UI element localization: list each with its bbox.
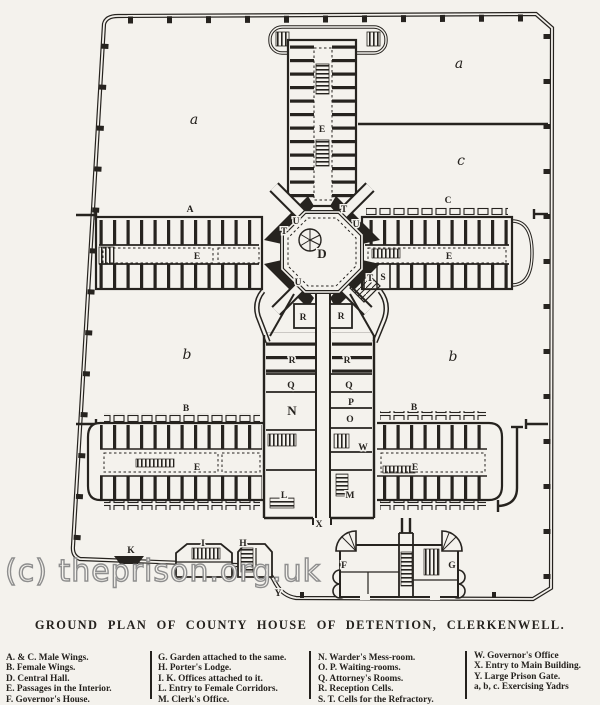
legend-entry: Y. Large Prison Gate. [474, 672, 596, 682]
plan-label-R: R [344, 356, 351, 366]
legend-entry: G. Garden attached to the same. [158, 653, 303, 663]
plan-label-L: L [281, 491, 287, 501]
plan-label-O: O [346, 415, 353, 425]
plan-label-C: C [445, 196, 452, 206]
plan-label-M: M [346, 491, 355, 501]
legend-column-2: G. Garden attached to the same.H. Porter… [158, 653, 303, 705]
female-wing-b-left [88, 413, 264, 510]
legend-entry: A. & C. Male Wings. [6, 653, 146, 663]
plan-label-R: R [300, 313, 307, 323]
plan-label-U: U [295, 278, 302, 288]
staircase [316, 140, 329, 166]
plan-label-X: X [316, 520, 323, 530]
plan-label-a: a [190, 112, 198, 128]
legend-column-3: N. Warder's Mess-room.O. P. Waiting-room… [318, 653, 458, 705]
plan-label-W: W [358, 443, 368, 453]
plan-label-R: R [289, 356, 296, 366]
legend-entry: E. Passages in the Interior. [6, 684, 146, 694]
reception-cells [332, 332, 372, 374]
plan-label-B: B [183, 404, 190, 414]
legend-entry: H. Porter's Lodge. [158, 663, 303, 673]
staircase [424, 549, 439, 575]
plan-label-Y: Y [275, 589, 282, 599]
yard-colonnade [366, 207, 508, 215]
legend-entry: W. Governor's Office [474, 651, 596, 661]
floor-plan: aacbbACBBEEEEEDTUTUUTSRRRRQQPNOWLMXKIHYF… [0, 0, 600, 615]
plan-label-E: E [319, 125, 325, 135]
legend-entry: O. P. Waiting-rooms. [318, 663, 458, 673]
west-wing-a [96, 217, 262, 289]
legend-entry: R. Reception Cells. [318, 684, 458, 694]
plan-label-R: R [338, 312, 345, 322]
plan-label-S: S [380, 273, 385, 283]
plan-label-E: E [446, 252, 452, 262]
plan-label-U: U [293, 217, 300, 227]
plan-label-a: a [455, 56, 463, 72]
plan-label-H: H [239, 539, 247, 549]
plan-label-I: I [201, 539, 205, 549]
plan-label-b: b [449, 349, 458, 365]
plan-label-G: G [448, 561, 456, 571]
legend-entry: Q. Attorney's Rooms. [318, 674, 458, 684]
plan-label-B: B [411, 403, 418, 413]
staircase [316, 64, 329, 94]
plan-label-T: T [341, 205, 348, 215]
legend-entry: F. Governor's House. [6, 695, 146, 705]
staircase [401, 552, 412, 586]
legend-entry: L. Entry to Female Corridors. [158, 684, 303, 694]
engraving-page: aacbbACBBEEEEEDTUTUUTSRRRRQQPNOWLMXKIHYF… [0, 0, 600, 702]
legend-entry: X. Entry to Main Building. [474, 661, 596, 671]
plan-label-E: E [194, 463, 200, 473]
reception-cells [266, 332, 316, 374]
plan-title: GROUND PLAN OF COUNTY HOUSE OF DETENTION… [0, 618, 600, 633]
plan-label-Q: Q [345, 381, 352, 391]
legend-entry: S. T. Cells for the Refractory. [318, 695, 458, 705]
legend-entry: B. Female Wings. [6, 663, 146, 673]
plan-label-N: N [287, 403, 297, 418]
plan-label-T: T [367, 274, 374, 284]
plan-label-c: c [457, 153, 465, 169]
legend-divider [150, 651, 152, 699]
legend-entry: D. Central Hall. [6, 674, 146, 684]
female-wing-b-right [377, 411, 502, 510]
watermark: (c) theprison.org.uk [5, 554, 321, 589]
legend-entry: N. Warder's Mess-room. [318, 653, 458, 663]
plan-label-P: P [348, 398, 354, 408]
plan-label-F: F [341, 561, 347, 571]
legend-entry: M. Clerk's Office. [158, 695, 303, 705]
plan-label-U: U [353, 220, 360, 230]
legend-divider [309, 651, 311, 699]
legend-column-1: A. & C. Male Wings.B. Female Wings.D. Ce… [6, 653, 146, 705]
legend: A. & C. Male Wings.B. Female Wings.D. Ce… [0, 649, 600, 702]
plan-label-E: E [194, 252, 200, 262]
plan-label-E: E [412, 463, 418, 473]
governors-house [333, 531, 465, 600]
plan-label-Q: Q [287, 381, 294, 391]
east-wing-c [362, 207, 532, 289]
staircase [99, 247, 114, 264]
legend-divider [465, 651, 467, 699]
plan-label-A: A [187, 205, 194, 215]
legend-entry: I. K. Offices attached to it. [158, 674, 303, 684]
plan-label-T: T [281, 227, 288, 237]
legend-entry: a, b, c. Exercising Yadrs [474, 682, 596, 692]
legend-column-4: W. Governor's OfficeX. Entry to Main Bui… [474, 651, 596, 693]
plan-label-b: b [183, 347, 192, 363]
plan-label-D: D [317, 246, 326, 261]
